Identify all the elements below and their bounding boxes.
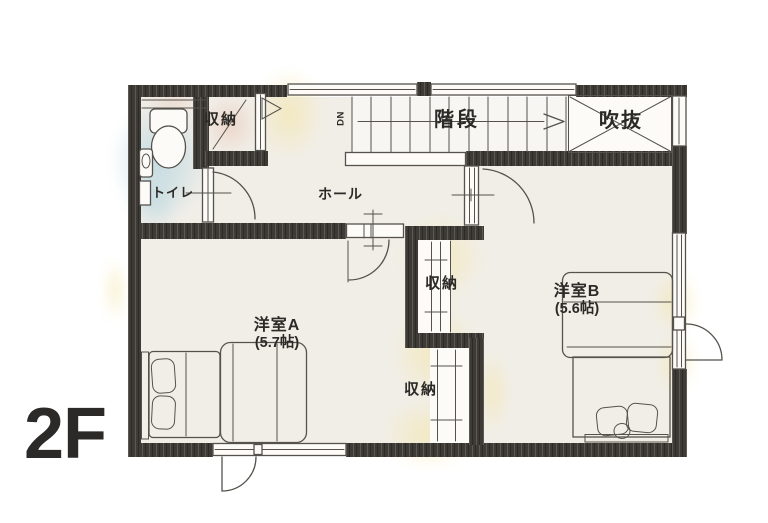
room-label-western-room-b: 洋室B (5.6帖) [512, 282, 642, 319]
room-label-western-room-a: 洋室A (5.7帖) [212, 316, 342, 353]
room-label-closet-top-left: 収納 [204, 111, 238, 129]
bed-room-a [142, 352, 221, 440]
stairs-down-label: DN [336, 104, 347, 134]
toilet-door [186, 168, 255, 222]
window-right [673, 96, 687, 146]
room-a-door [347, 210, 404, 282]
room-a-name: 洋室A [212, 316, 342, 335]
room-b-size: (5.6帖) [512, 301, 642, 318]
room-label-stairs: 階段 [434, 108, 480, 132]
hall-room-b-door [452, 166, 534, 225]
floor-indicator: 2F [24, 398, 106, 470]
window-top-left [288, 84, 417, 95]
room-label-void: 吹抜 [599, 109, 643, 133]
door-swing-bottom [222, 457, 256, 491]
room-label-hall: ホール [318, 186, 363, 203]
floorplan-canvas: トイレ 収納 階段 DN 吹抜 ホール 収納 収納 洋室A (5.7帖) 洋室B… [0, 0, 768, 523]
room-a-size: (5.7帖) [212, 335, 342, 352]
sliding-window-bottom [213, 444, 346, 456]
window-top-right [431, 84, 576, 95]
room-label-closet-middle: 収納 [425, 275, 459, 293]
stair-handrail [346, 153, 466, 166]
room-b-name: 洋室B [512, 282, 642, 301]
room-label-closet-lower: 収納 [404, 381, 438, 399]
room-b-exterior-door [673, 233, 723, 369]
wardrobe-room-a [221, 343, 307, 443]
room-label-toilet: トイレ [152, 185, 194, 201]
